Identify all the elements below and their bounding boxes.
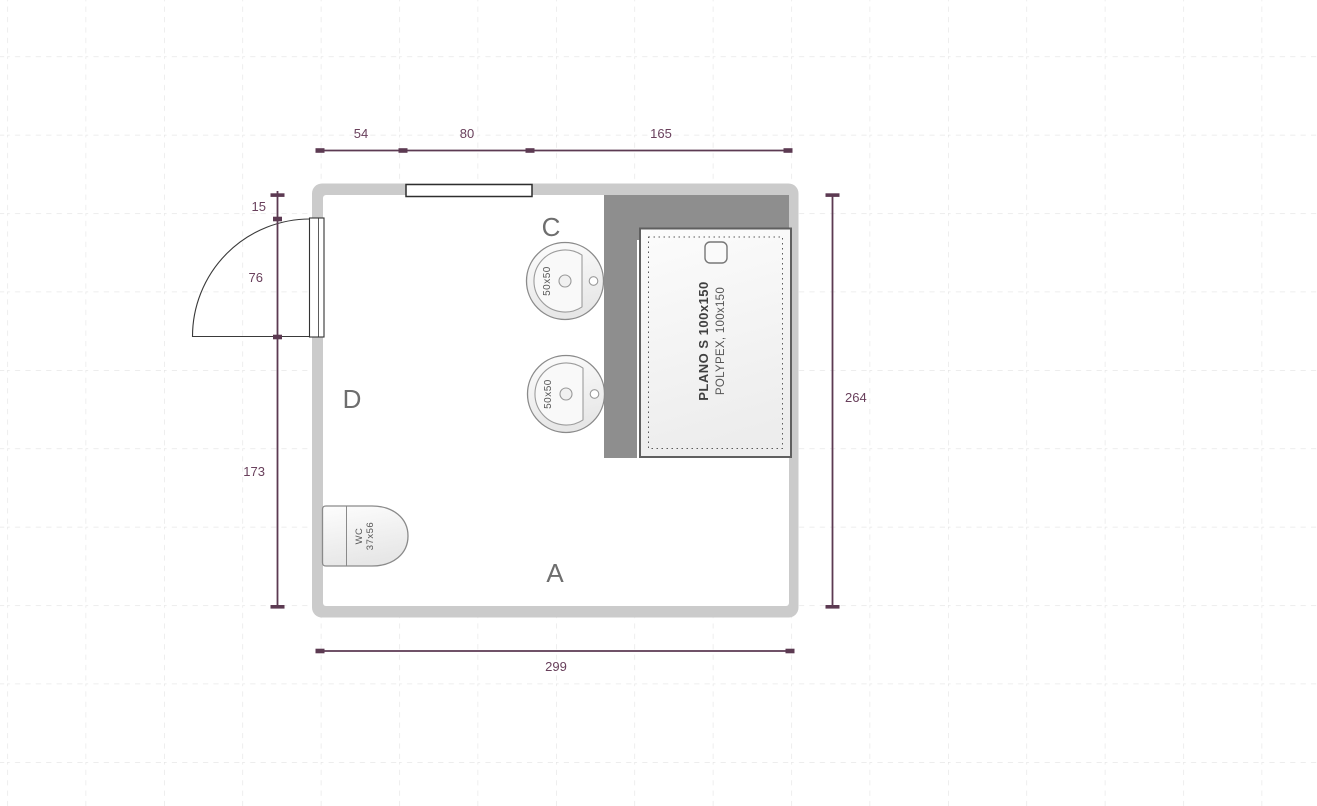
washbasin-bottom[interactable] — [528, 356, 605, 433]
faucet-icon — [589, 277, 598, 286]
drain-icon — [560, 388, 572, 400]
window[interactable] — [406, 185, 532, 197]
faucet-icon — [590, 390, 599, 399]
wc[interactable] — [323, 506, 409, 566]
floorplan-canvas: 54 80 165 15 76 173 264 299 C D A 50x50 … — [0, 0, 1317, 806]
shower-tray[interactable] — [640, 229, 791, 458]
drain-icon — [559, 275, 571, 287]
floorplan-drawing — [0, 0, 1317, 806]
door-leaf — [310, 218, 325, 337]
shower-drain-icon — [705, 242, 727, 263]
washbasin-top[interactable] — [527, 243, 604, 320]
